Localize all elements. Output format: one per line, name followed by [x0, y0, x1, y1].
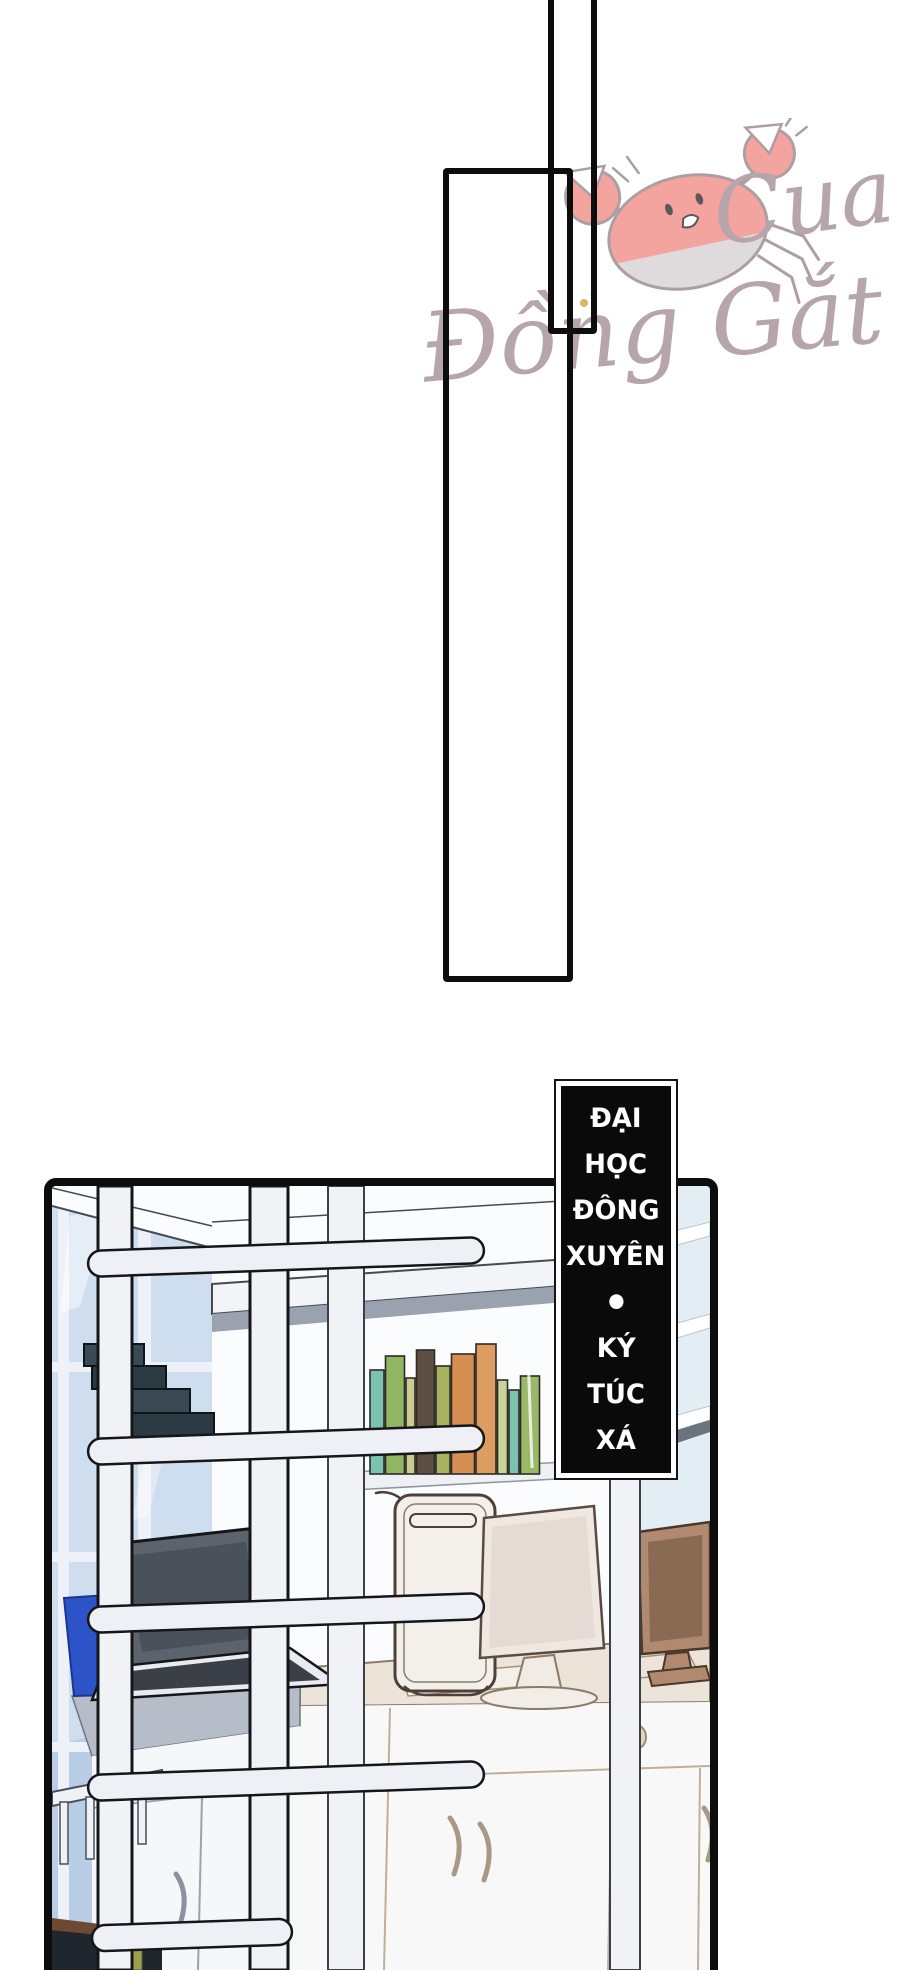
book-spine	[406, 1378, 415, 1474]
caption-box: ĐẠI HỌC ĐÔNG XUYÊN • KÝ TÚC XÁ	[556, 1081, 676, 1478]
ladder-rail	[98, 1186, 132, 1970]
book-spine	[509, 1390, 519, 1474]
panel-outline-middle	[443, 168, 573, 982]
book-spine	[436, 1366, 450, 1474]
book-spine	[498, 1380, 508, 1474]
caption-line: XÁ	[596, 1418, 636, 1464]
book-spine	[476, 1344, 496, 1474]
caption-line: TÚC	[587, 1372, 645, 1418]
caption-line: HỌC	[585, 1142, 648, 1188]
caption-bullet-dot: •	[603, 1280, 629, 1326]
bed-post	[328, 1186, 364, 1970]
book-spine	[452, 1354, 475, 1474]
book-spine	[386, 1356, 405, 1474]
ladder-rail	[250, 1186, 288, 1970]
watermark-text-cua: Cua	[706, 138, 899, 267]
caption-line: KÝ	[597, 1326, 636, 1372]
caption-line: XUYÊN	[566, 1234, 665, 1280]
book-spine	[370, 1370, 384, 1474]
ladder-rung	[92, 1919, 293, 1952]
caption-line: ĐÔNG	[573, 1188, 660, 1234]
caption-line: ĐẠI	[590, 1096, 641, 1142]
book-spine	[417, 1350, 435, 1474]
comic-page: { "watermark": { "artist_line1": "Cua", …	[0, 0, 900, 1970]
